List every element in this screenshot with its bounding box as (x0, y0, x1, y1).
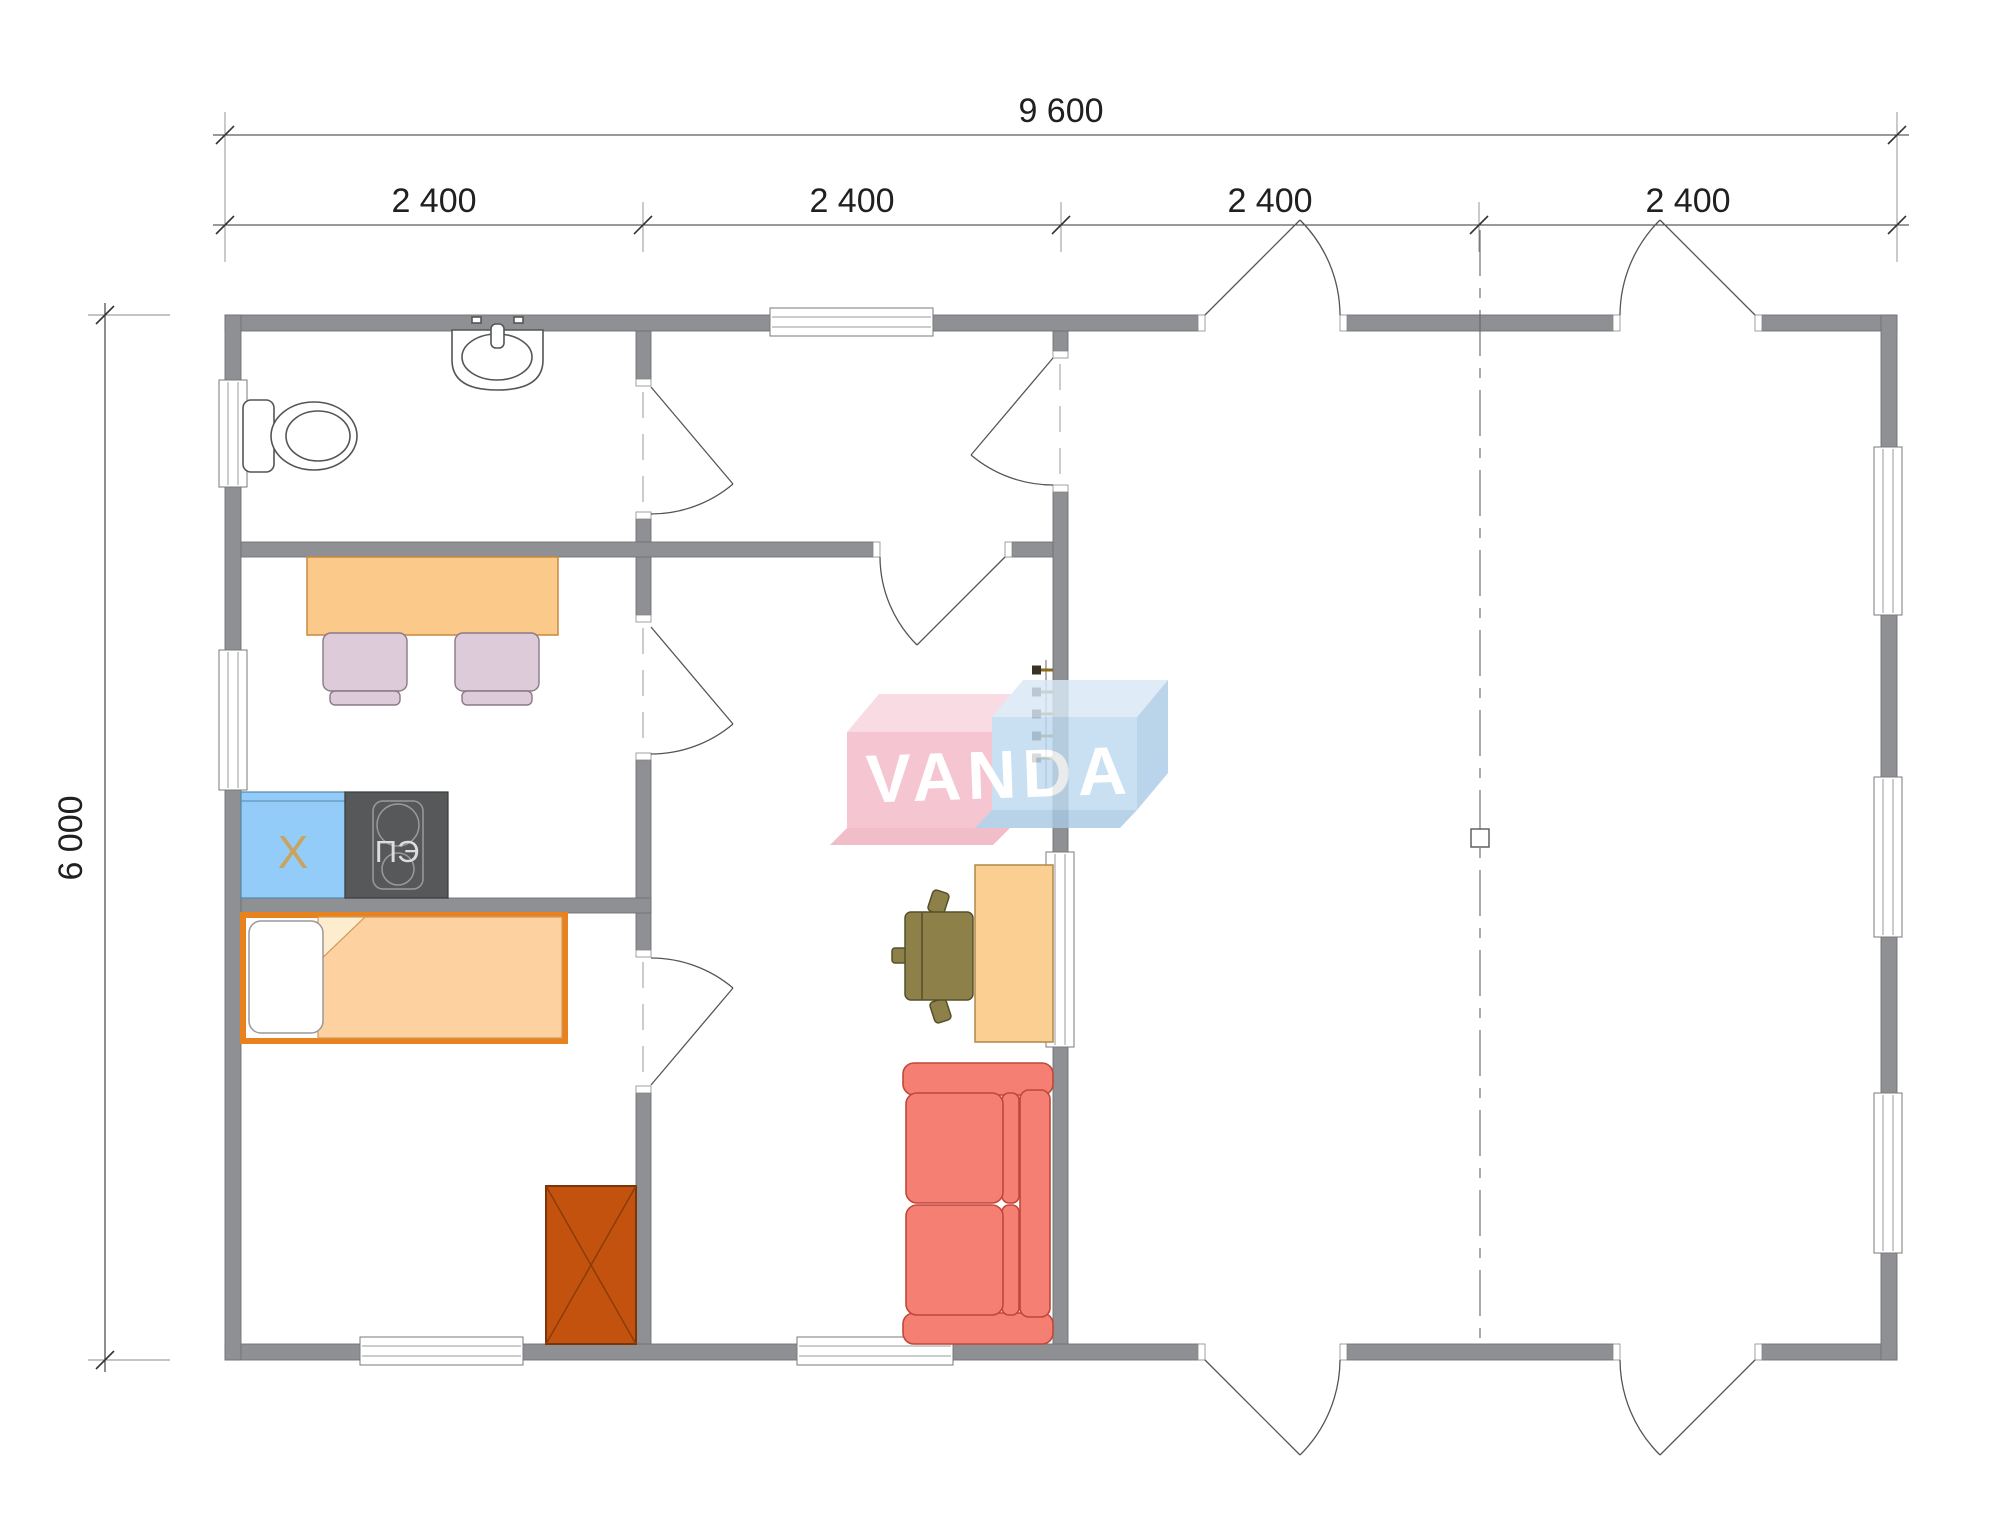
fridge: X (241, 792, 345, 898)
wall-segment (241, 542, 873, 557)
wall-segment (636, 519, 651, 615)
wall-segment (636, 331, 651, 379)
dimension-label-segment-3: 2 400 (1227, 182, 1312, 220)
wall-segment (1347, 1344, 1613, 1360)
door-jambs (636, 315, 1762, 1360)
dimension-label-segment-4: 2 400 (1645, 182, 1730, 220)
door-terrace-top-left (1205, 220, 1340, 315)
walls (225, 315, 1897, 1360)
dimension-label-total-width: 9 600 (1018, 92, 1103, 130)
door-bathroom (651, 387, 733, 514)
door-terrace-bottom-left (1205, 1360, 1340, 1455)
stove-label: ПЭ (375, 834, 420, 869)
wall-interior-d (241, 898, 651, 913)
wall-segment (1053, 1047, 1068, 1344)
door-terrace-bottom-right (1620, 1360, 1755, 1455)
watermark: VANDA (830, 680, 1168, 845)
door-bedroom (651, 958, 733, 1085)
wall-interior-b (241, 542, 1053, 557)
stove: ПЭ (345, 792, 448, 898)
wall-segment (636, 1093, 651, 1344)
wall-segment (523, 1344, 797, 1360)
dimension-line-total-height (96, 303, 114, 1372)
kitchen-chair-1 (323, 633, 407, 705)
sofa (903, 1063, 1053, 1344)
wall-segment (1053, 331, 1068, 351)
wall-segment (225, 487, 241, 650)
terrace-center-marker (1471, 829, 1489, 847)
door-terrace-top-right (1620, 220, 1755, 315)
window-terrace-right-3 (1874, 1093, 1902, 1253)
watermark-blue-top (992, 680, 1168, 717)
watermark-pink-bottom (830, 828, 1010, 845)
toilet (243, 400, 357, 472)
door-hall-terrace (971, 358, 1053, 485)
wall-segment (241, 898, 651, 913)
dimension-label-segment-1: 2 400 (391, 182, 476, 220)
window-hall-top (770, 308, 933, 336)
wall-segment (1881, 1253, 1897, 1360)
bed-blanket (318, 917, 562, 1038)
door-kitchen (651, 627, 733, 754)
wardrobe (546, 1186, 636, 1344)
wall-segment (636, 760, 651, 950)
wall-interior-c (1053, 331, 1068, 1344)
window-bedroom-bottom (360, 1337, 523, 1365)
desk (975, 865, 1053, 1042)
window-terrace-right-2 (1874, 777, 1902, 937)
floor-plan-drawing: 9 600 2 400 2 400 2 400 2 400 6 000 (0, 0, 2000, 1524)
kitchen-table (307, 557, 558, 635)
wall-segment (225, 790, 241, 1360)
wall-segment (933, 315, 1198, 331)
dimension-label-segment-2: 2 400 (809, 182, 894, 220)
desk-chair (892, 889, 973, 1024)
watermark-text: VANDA (865, 732, 1134, 817)
wall-segment (225, 1344, 360, 1360)
wall-segment (1762, 315, 1897, 331)
floor-plan-page: 9 600 2 400 2 400 2 400 2 400 6 000 (0, 0, 2000, 1524)
dimension-label-total-height: 6 000 (52, 795, 90, 880)
wall-segment (1881, 937, 1897, 1093)
door-hall-living (880, 557, 1005, 645)
wall-segment (1012, 542, 1053, 557)
wall-segment (1881, 615, 1897, 777)
window-terrace-right-1 (1874, 447, 1902, 615)
wall-segment (225, 315, 241, 380)
kitchen-chair-2 (455, 633, 539, 705)
doors (643, 220, 1755, 1455)
bed-pillow (249, 921, 323, 1033)
fridge-label: X (278, 826, 309, 878)
wall-segment (1881, 315, 1897, 447)
wall-segment (1762, 1344, 1897, 1360)
wall-segment (953, 1344, 1198, 1360)
bed (243, 915, 565, 1041)
window-kitchen-left (219, 650, 247, 790)
